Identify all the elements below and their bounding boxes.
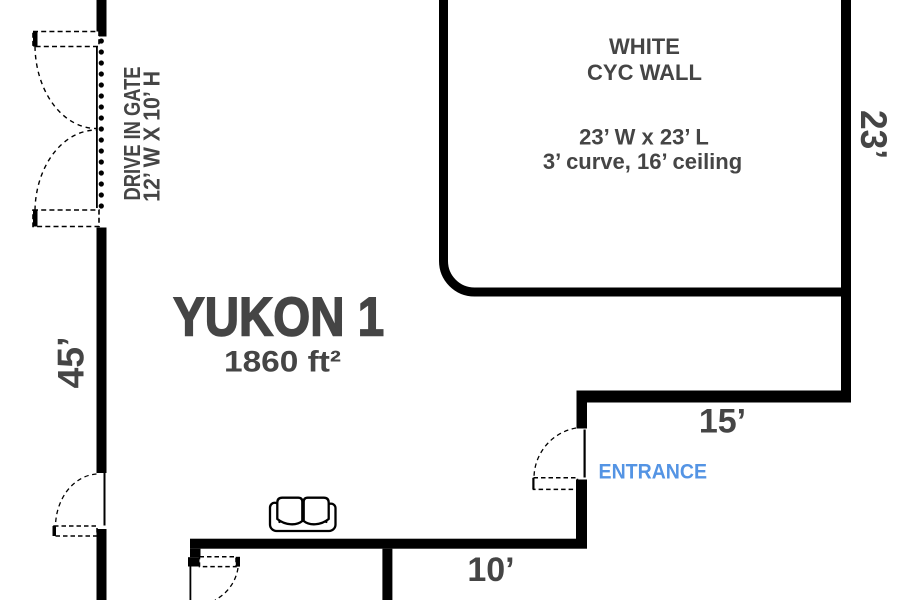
svg-text:1860 ft²: 1860 ft² [224, 346, 341, 379]
svg-text:CYC WALL: CYC WALL [587, 60, 702, 85]
svg-text:ENTRANCE: ENTRANCE [599, 461, 708, 484]
svg-text:45’: 45’ [50, 337, 91, 389]
svg-text:12’ W X 10’ H: 12’ W X 10’ H [139, 71, 165, 202]
svg-text:YUKON 1: YUKON 1 [173, 286, 384, 348]
svg-text:3’ curve, 16’ ceiling: 3’ curve, 16’ ceiling [543, 149, 742, 174]
svg-text:23’: 23’ [853, 110, 894, 159]
svg-text:15’: 15’ [699, 403, 746, 441]
svg-text:10’: 10’ [467, 551, 514, 589]
svg-text:WHITE: WHITE [609, 34, 680, 59]
svg-text:23’ W x 23’ L: 23’ W x 23’ L [579, 125, 709, 150]
